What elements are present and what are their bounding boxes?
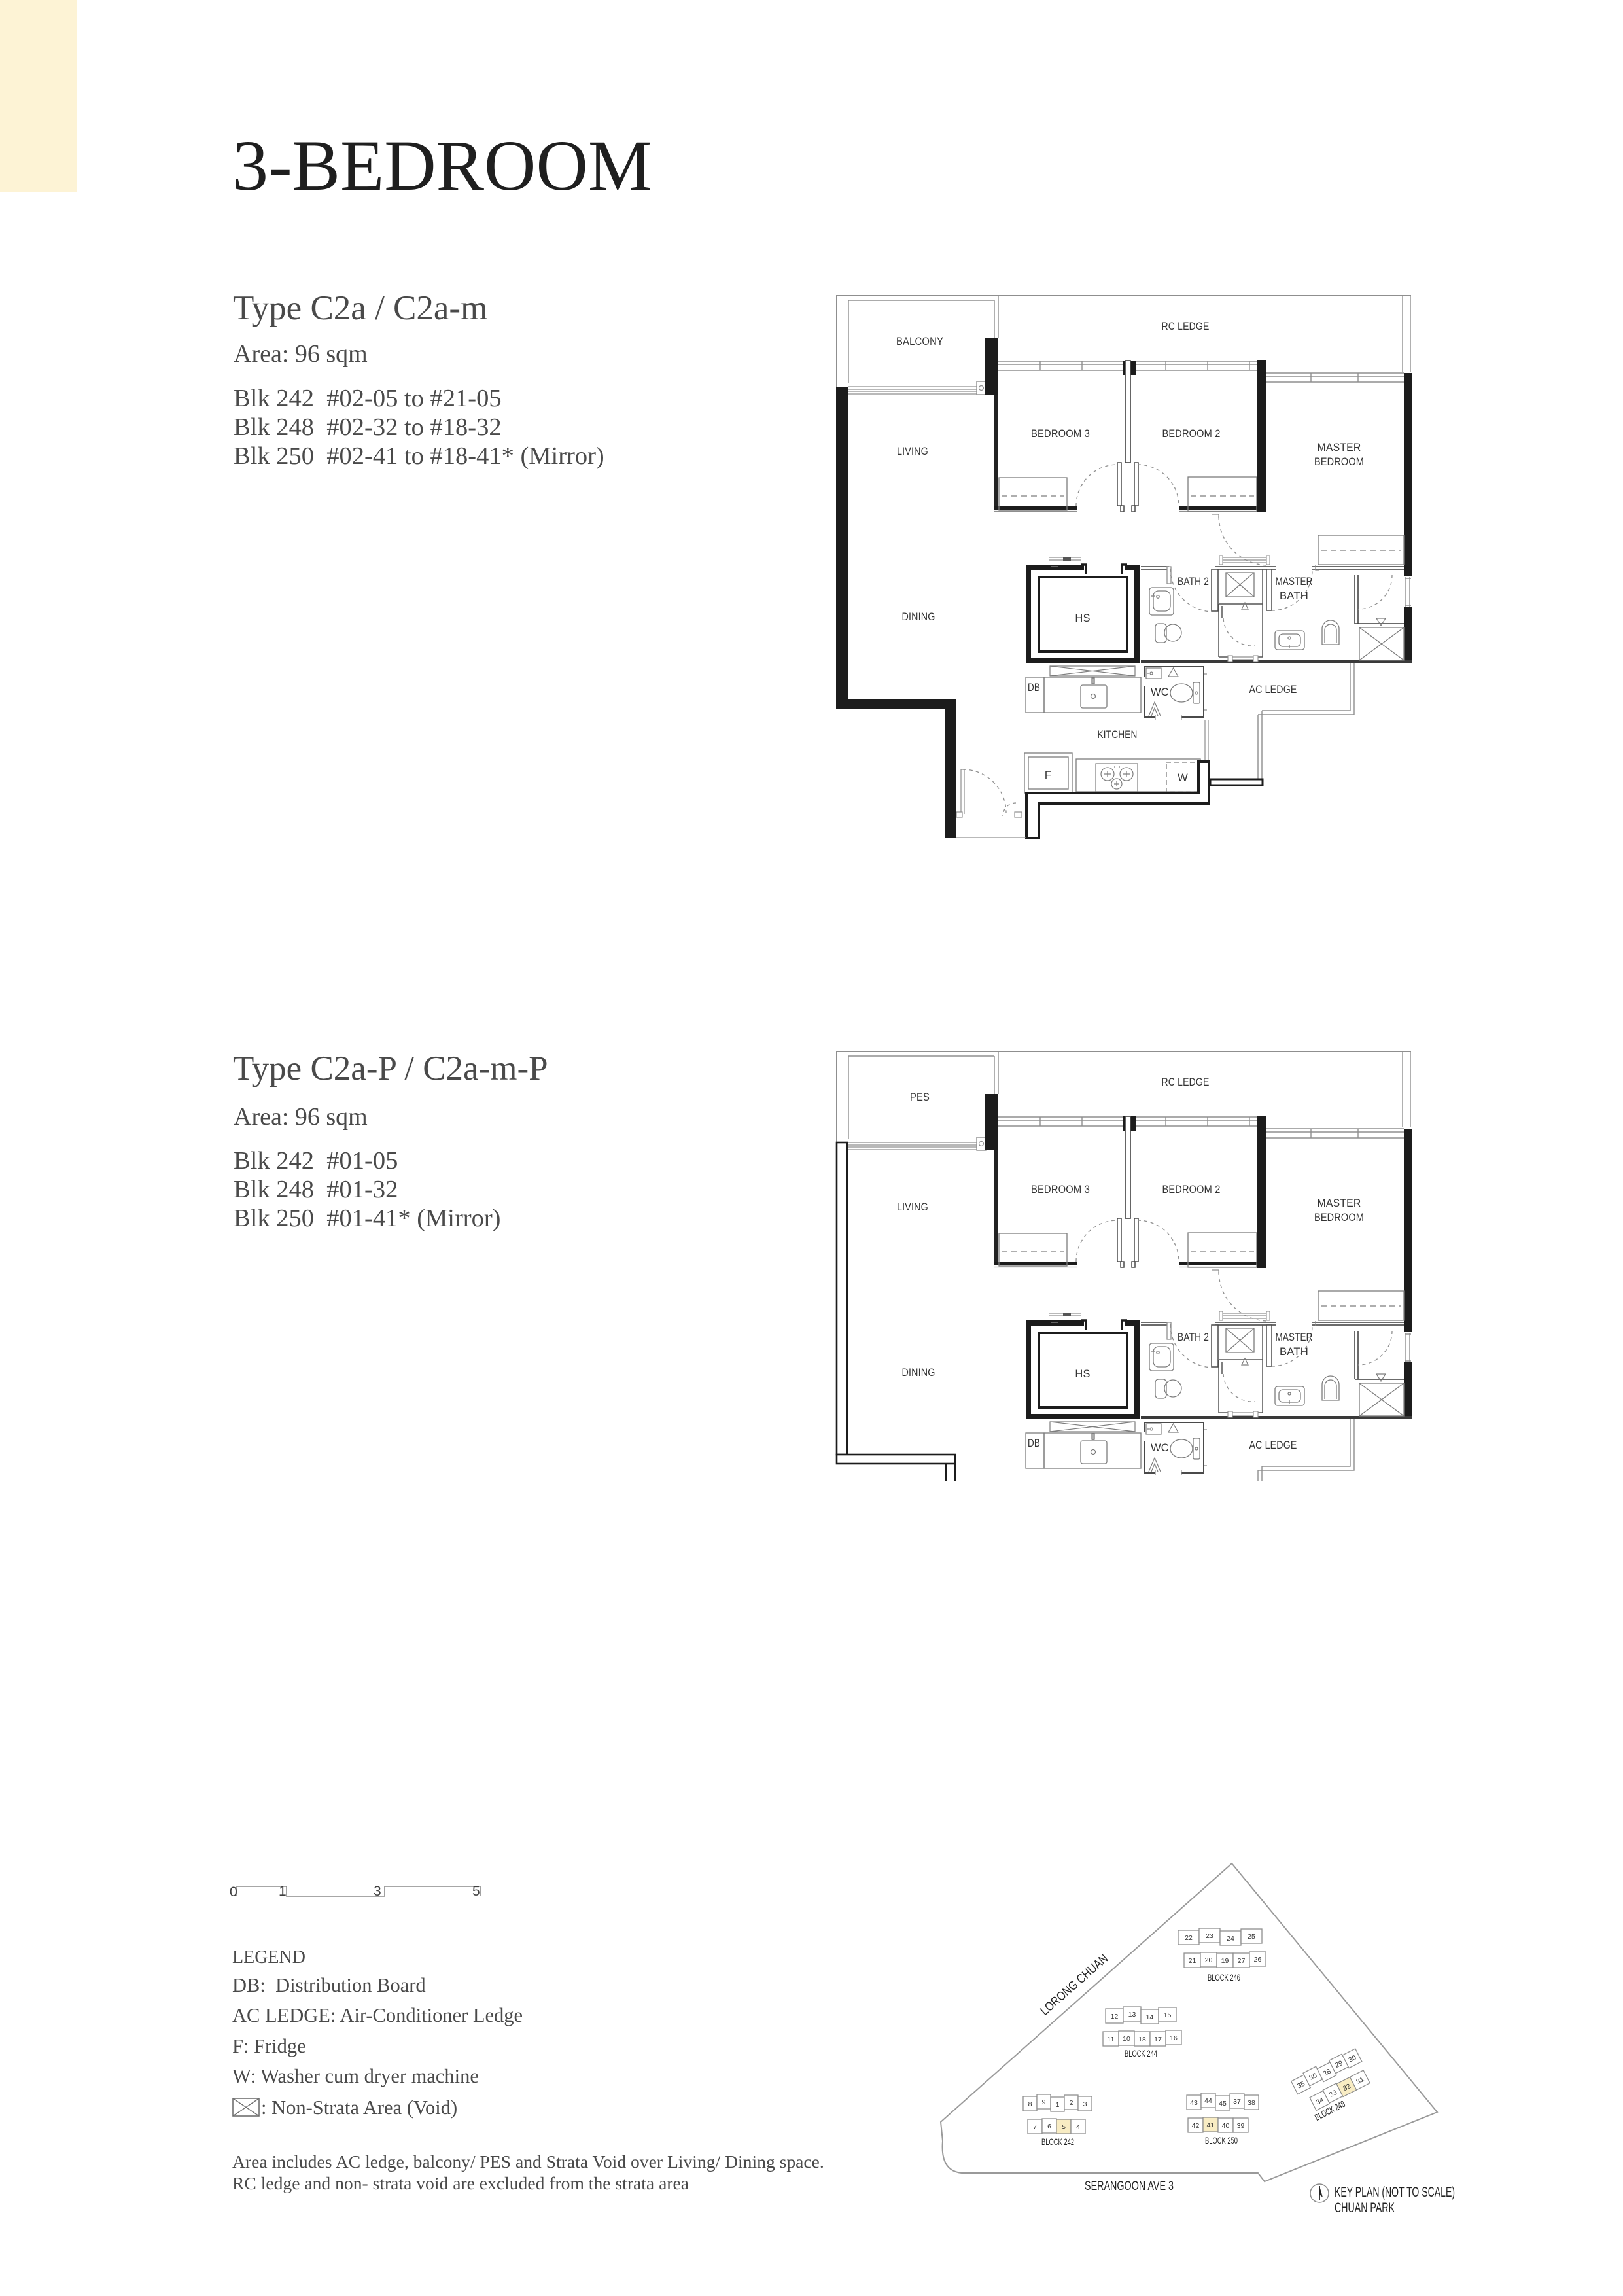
svg-text:25: 25	[1248, 1933, 1255, 1941]
svg-text:39: 39	[1237, 2122, 1245, 2130]
svg-text:DB: DB	[1028, 682, 1040, 694]
svg-text:8: 8	[1028, 2100, 1032, 2108]
svg-text:21: 21	[1189, 1957, 1196, 1965]
svg-text:RC LEDGE: RC LEDGE	[1162, 1076, 1210, 1088]
svg-text:13: 13	[1128, 2011, 1136, 2019]
svg-text:BEDROOM: BEDROOM	[1314, 456, 1364, 468]
svg-text:1: 1	[1056, 2101, 1060, 2109]
svg-text:F: F	[1045, 769, 1051, 781]
svg-text:10: 10	[1123, 2035, 1130, 2043]
svg-text:16: 16	[1170, 2034, 1178, 2042]
svg-text:26: 26	[1254, 1956, 1262, 1964]
svg-text:3: 3	[1083, 2100, 1087, 2108]
svg-text:LIVING: LIVING	[897, 446, 928, 457]
svg-text:BATH 2: BATH 2	[1178, 576, 1209, 588]
svg-text:DB: DB	[1028, 1438, 1040, 1449]
svg-text:12: 12	[1111, 2013, 1119, 2021]
svg-text:40: 40	[1222, 2122, 1230, 2130]
svg-text:KITCHEN: KITCHEN	[1098, 729, 1138, 741]
svg-text:BLOCK 246: BLOCK 246	[1208, 1972, 1240, 1983]
svg-text:WC: WC	[1151, 686, 1169, 698]
svg-text:PES: PES	[910, 1091, 930, 1103]
svg-text:18: 18	[1138, 2036, 1146, 2043]
svg-text:6: 6	[1047, 2123, 1051, 2130]
svg-text:1: 1	[279, 1884, 287, 1899]
svg-text:LIVING: LIVING	[897, 1201, 928, 1213]
svg-text:HS: HS	[1075, 612, 1090, 624]
svg-text:22: 22	[1185, 1934, 1193, 1942]
svg-text:LORONG CHUAN: LORONG CHUAN	[1038, 1952, 1111, 2019]
svg-text:14: 14	[1146, 2013, 1154, 2021]
svg-text:MASTER: MASTER	[1318, 1197, 1361, 1209]
svg-text:MASTER: MASTER	[1276, 1332, 1313, 1343]
svg-text:DINING: DINING	[902, 1367, 935, 1379]
svg-text:WC: WC	[1151, 1442, 1169, 1454]
svg-text:RC LEDGE: RC LEDGE	[1162, 321, 1210, 332]
svg-text:BEDROOM 2: BEDROOM 2	[1162, 1184, 1221, 1195]
svg-text:MASTER: MASTER	[1276, 576, 1313, 588]
svg-text:7: 7	[1033, 2123, 1037, 2131]
svg-text:BATH 2: BATH 2	[1178, 1332, 1209, 1343]
svg-text:41: 41	[1207, 2121, 1215, 2129]
svg-text:HS: HS	[1075, 1368, 1090, 1380]
svg-text:2: 2	[1070, 2099, 1073, 2107]
svg-text:BATH: BATH	[1280, 590, 1308, 602]
svg-text:24: 24	[1227, 1935, 1234, 1943]
svg-text:MASTER: MASTER	[1318, 442, 1361, 453]
svg-text:DINING: DINING	[902, 611, 935, 623]
svg-text:19: 19	[1221, 1957, 1229, 1965]
svg-text:SERANGOON AVE 3: SERANGOON AVE 3	[1085, 2180, 1174, 2193]
svg-text:44: 44	[1204, 2097, 1212, 2105]
svg-text:45: 45	[1219, 2100, 1227, 2108]
svg-text:3: 3	[374, 1884, 381, 1899]
svg-text:BEDROOM 3: BEDROOM 3	[1031, 428, 1090, 440]
svg-text:BLOCK 250: BLOCK 250	[1205, 2135, 1238, 2146]
svg-text:9: 9	[1042, 2098, 1046, 2106]
svg-text:0: 0	[230, 1884, 237, 1899]
svg-text:42: 42	[1192, 2122, 1200, 2130]
svg-text:17: 17	[1154, 2036, 1162, 2043]
svg-text:15: 15	[1164, 2011, 1172, 2019]
svg-text:11: 11	[1108, 2036, 1115, 2043]
svg-text:BEDROOM 3: BEDROOM 3	[1031, 1184, 1090, 1195]
svg-text:4: 4	[1076, 2123, 1080, 2131]
svg-text:BLOCK 244: BLOCK 244	[1125, 2048, 1157, 2058]
svg-text:BATH: BATH	[1280, 1346, 1308, 1358]
svg-text:W: W	[1178, 772, 1188, 784]
svg-text:BEDROOM 2: BEDROOM 2	[1162, 428, 1221, 440]
svg-text:AC LEDGE: AC LEDGE	[1249, 684, 1297, 696]
svg-text:AC LEDGE: AC LEDGE	[1249, 1439, 1297, 1451]
svg-text:5: 5	[1062, 2123, 1066, 2131]
svg-text:20: 20	[1205, 1956, 1213, 1964]
svg-text:27: 27	[1238, 1957, 1246, 1965]
svg-text:5: 5	[472, 1884, 480, 1899]
svg-text:KEY PLAN (NOT TO SCALE): KEY PLAN (NOT TO SCALE)	[1335, 2185, 1455, 2200]
svg-text:43: 43	[1190, 2099, 1198, 2107]
svg-text:23: 23	[1206, 1932, 1213, 1940]
svg-text:BLOCK 242: BLOCK 242	[1041, 2136, 1074, 2147]
svg-text:CHUAN PARK: CHUAN PARK	[1335, 2200, 1395, 2216]
svg-text:38: 38	[1248, 2099, 1255, 2107]
svg-text:BEDROOM: BEDROOM	[1314, 1212, 1364, 1224]
svg-text:37: 37	[1233, 2098, 1241, 2106]
svg-text:BALCONY: BALCONY	[896, 336, 943, 347]
